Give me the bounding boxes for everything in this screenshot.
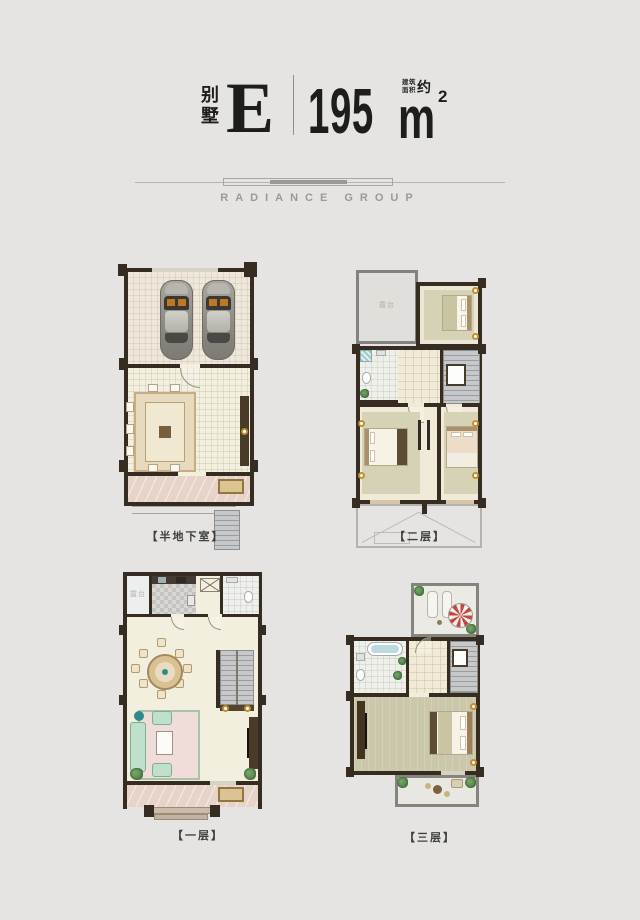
bed-blanket bbox=[438, 712, 452, 754]
wall-pier bbox=[476, 635, 484, 645]
bed-headboard bbox=[467, 712, 472, 754]
wall-segment bbox=[437, 407, 441, 501]
coffee-table bbox=[156, 731, 173, 755]
wall-pier bbox=[258, 625, 266, 635]
wall-segment bbox=[127, 614, 171, 617]
balcony-lounge-chair bbox=[451, 779, 463, 788]
wall-segment bbox=[360, 403, 408, 407]
sink bbox=[376, 350, 386, 356]
wall-pier bbox=[478, 278, 486, 288]
dining-chair bbox=[139, 649, 148, 658]
plant bbox=[414, 586, 424, 596]
wall-lamp bbox=[470, 759, 477, 766]
wall-lamp bbox=[358, 472, 365, 479]
header: 别 墅 E 195 建筑 面积 约 m 2 bbox=[0, 0, 640, 160]
plan-label: 【三层】 bbox=[350, 829, 510, 845]
wall-pier bbox=[476, 767, 484, 777]
stair-void bbox=[446, 364, 466, 386]
dining-chair bbox=[175, 649, 184, 658]
shower bbox=[360, 350, 372, 362]
wall-lamp bbox=[470, 703, 477, 710]
bed-blanket bbox=[447, 453, 477, 467]
newel-lamp bbox=[244, 705, 251, 712]
wall-segment bbox=[424, 403, 446, 407]
wall-pier bbox=[346, 635, 354, 645]
car-rear-window bbox=[165, 333, 188, 343]
wall-pier bbox=[119, 460, 126, 472]
wall-pier bbox=[118, 264, 127, 276]
cabinet-lamp bbox=[241, 428, 248, 435]
dining-chair bbox=[157, 690, 166, 699]
header-divider-line bbox=[293, 75, 294, 135]
wall-pier bbox=[119, 695, 127, 705]
car bbox=[160, 280, 193, 360]
chair bbox=[148, 464, 158, 472]
bed-pillow bbox=[461, 299, 466, 311]
car-seat bbox=[220, 299, 228, 306]
door-mat bbox=[218, 787, 244, 802]
bed-pillow bbox=[370, 450, 375, 462]
plan-label: 【半地下室】 bbox=[118, 528, 253, 544]
bed-pillow bbox=[461, 315, 466, 327]
hallway bbox=[398, 350, 440, 403]
wall-pier bbox=[352, 344, 360, 354]
chair bbox=[170, 464, 180, 472]
bed bbox=[442, 295, 472, 331]
wall-pier bbox=[478, 498, 486, 508]
toilet bbox=[356, 669, 365, 681]
bed-runner bbox=[430, 712, 437, 754]
plant bbox=[244, 768, 256, 780]
fridge bbox=[187, 595, 195, 606]
brand-divider-fill bbox=[270, 180, 347, 184]
wall-lamp bbox=[358, 420, 365, 427]
unit-letter: E bbox=[226, 72, 274, 144]
wall-lamp bbox=[472, 420, 479, 427]
car-roof bbox=[165, 311, 188, 332]
sink bbox=[226, 577, 238, 583]
floor-lamp bbox=[427, 420, 430, 450]
vase bbox=[134, 711, 144, 721]
wall-stub bbox=[422, 504, 427, 514]
car-windshield bbox=[164, 296, 189, 310]
wall-pier bbox=[258, 695, 266, 705]
tv-cabinet bbox=[249, 717, 258, 769]
bed-pillow bbox=[370, 432, 375, 444]
plan-second-floor: 露台 bbox=[350, 260, 502, 552]
stair-void bbox=[452, 649, 468, 667]
bed-pillow bbox=[460, 716, 466, 730]
wall-pier bbox=[352, 498, 360, 508]
dining-chair bbox=[183, 664, 192, 673]
wall-pier bbox=[251, 460, 258, 472]
wall-pier bbox=[119, 625, 127, 635]
area-unit: m bbox=[398, 90, 435, 148]
bed-blanket bbox=[443, 296, 457, 330]
closet bbox=[200, 578, 220, 592]
wall-pier bbox=[210, 805, 220, 817]
wall-lamp bbox=[472, 333, 479, 340]
plant bbox=[397, 777, 408, 788]
car-roof bbox=[207, 311, 230, 332]
chair bbox=[126, 446, 134, 456]
floor-lamp bbox=[418, 420, 421, 450]
plan-semi-basement: 【半地下室】 bbox=[118, 260, 268, 552]
wall-pier bbox=[251, 358, 258, 370]
plant bbox=[360, 389, 369, 398]
brand-name: RADIANCE GROUP bbox=[0, 192, 640, 204]
tv bbox=[247, 728, 249, 758]
plan-label: 【二层】 bbox=[350, 528, 490, 544]
terrace-note: 露台 bbox=[127, 589, 149, 599]
dining-chair bbox=[139, 679, 148, 688]
car-seat bbox=[178, 299, 186, 306]
newel-lamp bbox=[222, 705, 229, 712]
chair bbox=[126, 424, 134, 434]
bed bbox=[429, 711, 473, 755]
area-exponent: 2 bbox=[438, 87, 447, 107]
stove bbox=[176, 577, 186, 583]
plan-first-floor: 露台 bbox=[118, 565, 270, 847]
unit-type-vertical: 别 墅 bbox=[199, 85, 221, 126]
chair bbox=[126, 402, 134, 412]
car-seat bbox=[167, 299, 175, 306]
tv bbox=[365, 713, 367, 749]
toilet bbox=[362, 372, 371, 384]
bed-throw bbox=[397, 429, 407, 465]
wall-lamp bbox=[472, 472, 479, 479]
plant bbox=[398, 657, 406, 665]
sun-lounger bbox=[427, 591, 438, 618]
porch-step bbox=[150, 807, 212, 814]
sofa bbox=[130, 722, 146, 772]
terrace-note: 露台 bbox=[356, 300, 418, 310]
plan-third-floor: 【三层】 bbox=[345, 583, 505, 845]
dining-chair bbox=[131, 664, 140, 673]
stair-rail bbox=[236, 650, 238, 705]
bed bbox=[364, 428, 408, 466]
armchair bbox=[152, 763, 172, 777]
porch-step bbox=[154, 814, 208, 820]
bed-headboard bbox=[467, 296, 471, 330]
toilet bbox=[244, 591, 253, 603]
wall-pier bbox=[346, 767, 354, 777]
car-seat bbox=[209, 299, 217, 306]
wall-segment bbox=[258, 785, 262, 809]
bistro-table bbox=[433, 785, 442, 794]
sink bbox=[356, 653, 365, 661]
wall-pier bbox=[144, 805, 154, 817]
bed-pillow bbox=[463, 432, 473, 437]
car-rear-window bbox=[207, 333, 230, 343]
armchair bbox=[152, 711, 172, 725]
kitchen-sink bbox=[158, 577, 166, 583]
wall-pier bbox=[244, 262, 257, 277]
plan-label: 【一层】 bbox=[118, 827, 278, 843]
wall-pier bbox=[346, 691, 354, 701]
dining-chair bbox=[157, 638, 166, 647]
car-hood bbox=[207, 283, 230, 294]
car-windshield bbox=[206, 296, 231, 310]
side-table bbox=[437, 620, 442, 625]
chair bbox=[170, 384, 180, 392]
area-value: 195 bbox=[308, 79, 374, 143]
wall-pier bbox=[478, 344, 486, 354]
wall-pier bbox=[119, 358, 126, 370]
tv-cabinet bbox=[357, 701, 365, 759]
bed-pillow bbox=[451, 432, 461, 437]
bistro-chair bbox=[444, 791, 450, 797]
parasol bbox=[448, 603, 473, 628]
bed-pillow bbox=[460, 736, 466, 750]
bistro-chair bbox=[425, 783, 431, 789]
car bbox=[202, 280, 235, 360]
table-centerpiece bbox=[162, 669, 168, 675]
door-mat bbox=[218, 479, 244, 494]
plant bbox=[393, 671, 402, 680]
unit-type-char-2: 墅 bbox=[199, 106, 221, 127]
wall-lamp bbox=[472, 287, 479, 294]
chair bbox=[148, 384, 158, 392]
plant bbox=[465, 777, 476, 788]
bed bbox=[446, 426, 478, 468]
garage-door-opening bbox=[152, 268, 218, 272]
floor-plan-sheet: 别 墅 E 195 建筑 面积 约 m 2 RADIANCE GROUP bbox=[0, 0, 640, 920]
wall-segment bbox=[462, 403, 480, 407]
plant bbox=[130, 768, 143, 780]
unit-type-char-1: 别 bbox=[199, 85, 221, 106]
bed-headboard bbox=[447, 427, 477, 431]
bathtub-water bbox=[371, 645, 399, 653]
car-hood bbox=[165, 283, 188, 294]
wall-segment bbox=[184, 614, 208, 617]
bed-headboard bbox=[365, 429, 369, 465]
wall-segment bbox=[222, 614, 259, 617]
table-center bbox=[159, 426, 171, 438]
